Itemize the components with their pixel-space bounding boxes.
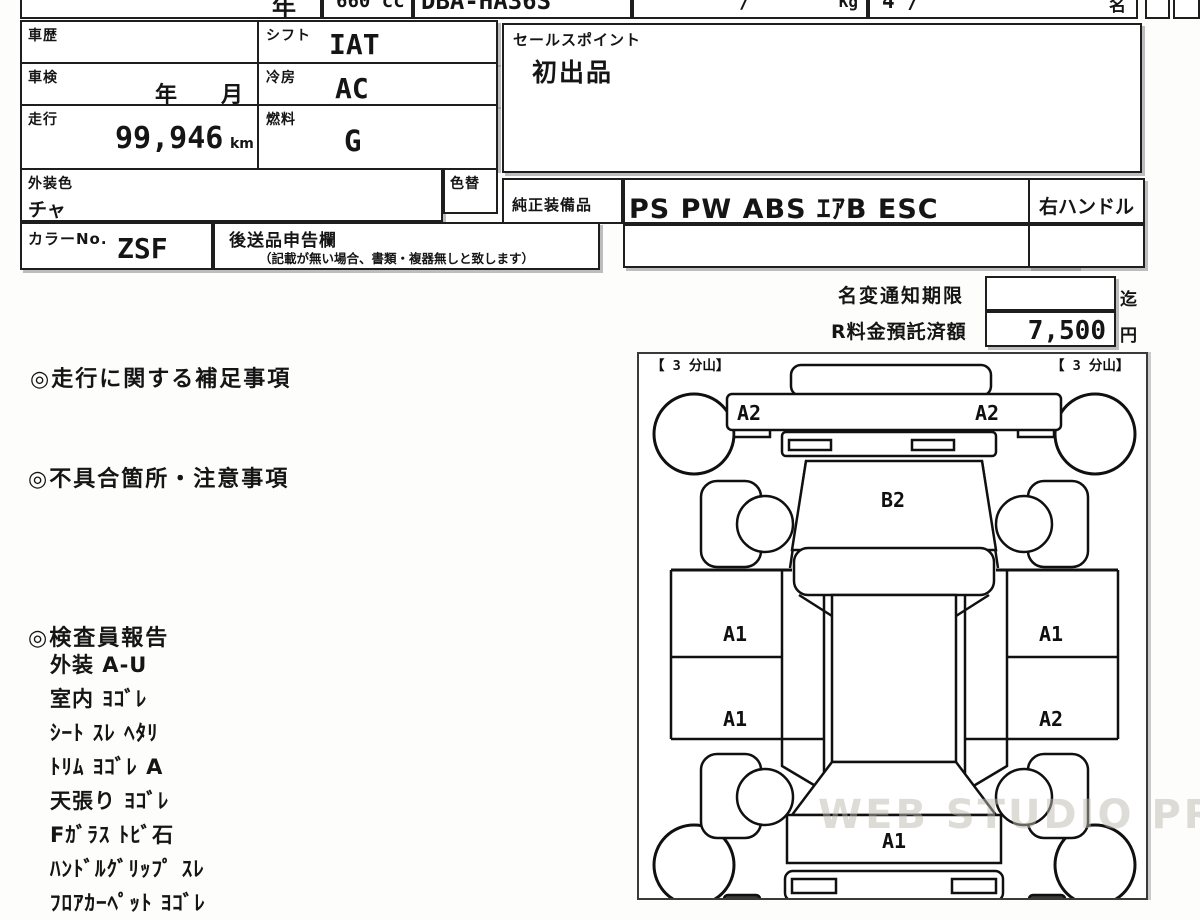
capacity-unit: 名 — [1109, 0, 1126, 16]
top-cell-capacity: 4 / 名 — [868, 0, 1138, 19]
shift-value: IAT — [329, 28, 380, 61]
report-item-exterior: 外装 A-U — [50, 648, 206, 682]
roof-panel — [794, 548, 994, 595]
mark-front-right: A2 — [975, 401, 999, 425]
report-item-glass: Fｶﾞﾗｽ ﾄﾋﾞ石 — [50, 818, 206, 852]
mark-door-front-left: A1 — [723, 622, 747, 646]
wheel-front-right-icon — [1055, 394, 1135, 474]
mileage-notes-heading: ◎走行に関する補足事項 — [30, 361, 291, 393]
aircon-label: 冷房 — [266, 67, 296, 87]
muffler-stub-right — [1029, 895, 1065, 900]
sales-point-value: 初出品 — [532, 53, 613, 89]
top-cell-name: 年 — [20, 0, 322, 19]
car-damage-diagram: 【 3 分山】 【 3 分山】 A2 A2 B2 A1 A1 A1 A2 A1 — [637, 352, 1148, 900]
hood-vent-left — [789, 440, 831, 450]
equipment-label-cell: 純正装備品 — [502, 178, 623, 224]
muffler-stub-left — [724, 895, 760, 900]
color-no-label: カラーNo. — [28, 228, 108, 249]
front-bumper — [791, 365, 991, 396]
auction-sheet: { "top_strip": { "year_fragment": "年", "… — [0, 0, 1200, 900]
rear-quarter-left-cutout — [737, 769, 793, 825]
report-item-carpet: ﾌﾛｱｶｰﾍﾟｯﾄ ﾖｺﾞﾚ — [50, 886, 206, 920]
sales-point-box: セールスポイント 初出品 — [502, 23, 1142, 173]
top-cell-displacement: 660 cc — [322, 0, 413, 19]
steering-cell-2 — [1028, 224, 1145, 268]
color-no-value: ZSF — [117, 232, 168, 265]
aircon-value: AC — [335, 72, 369, 105]
history-cell: 車歴 — [20, 20, 259, 64]
top-cell-weight: / Kg — [632, 0, 868, 19]
hood-vent-right — [912, 440, 954, 450]
mileage-unit: km — [230, 136, 254, 152]
capacity-value: 4 / — [882, 0, 920, 13]
later-items-cell: 後送品申告欄 （記載が無い場合、書類・複器無しと致します） — [213, 222, 600, 270]
rear-bumper-vent-left — [792, 879, 836, 893]
report-item-grip: ﾊﾝﾄﾞﾙｸﾞﾘｯﾌﾟ ｽﾚ — [50, 852, 206, 886]
tire-note-right: 【 3 分山】 — [1051, 358, 1129, 374]
cabin-panel — [832, 595, 956, 762]
tire-note-left: 【 3 分山】 — [651, 358, 729, 374]
mark-front-left: A2 — [737, 401, 761, 425]
steering-cell: 右ハンドル — [1028, 178, 1145, 224]
name-change-suffix: 迄 — [1120, 285, 1137, 310]
front-panel-strip — [727, 394, 1061, 430]
shift-cell: シフト IAT — [257, 20, 498, 64]
wheel-front-left-icon — [654, 394, 734, 474]
mirror-left-cutout — [737, 496, 793, 552]
rear-quarter-right-cutout — [996, 769, 1052, 825]
shift-label: シフト — [266, 25, 311, 45]
name-change-label: 名変通知期限 — [838, 281, 964, 308]
car-top-view: 【 3 分山】 【 3 分山】 A2 A2 B2 A1 A1 A1 A2 A1 — [639, 354, 1148, 900]
inspection-label: 車検 — [28, 67, 58, 87]
report-item-interior: 室内 ﾖｺﾞﾚ — [50, 682, 206, 716]
fuel-label: 燃料 — [266, 109, 296, 129]
steering-value: 右ハンドル — [1039, 192, 1134, 219]
mileage-value: 99,946 — [115, 121, 223, 156]
defects-heading: ◎不具合箇所・注意事項 — [28, 461, 289, 493]
history-label: 車歴 — [28, 25, 58, 45]
mark-windshield: B2 — [881, 488, 905, 512]
rear-bumper-vent-right — [952, 879, 996, 893]
top-cell-stub-1 — [1145, 0, 1170, 19]
aircon-cell: 冷房 AC — [257, 62, 498, 106]
mark-door-rear-right: A2 — [1039, 707, 1063, 731]
mileage-label: 走行 — [28, 109, 58, 129]
recycle-fee-box: 7,500 — [985, 311, 1116, 347]
color-no-cell: カラーNo. ZSF — [20, 222, 213, 270]
weight-unit: Kg — [839, 0, 858, 11]
exterior-color-cell: 外装色 チャ — [20, 168, 443, 222]
equipment-label: 純正装備品 — [512, 194, 592, 215]
mark-rear-panel: A1 — [882, 829, 906, 853]
mark-door-front-right: A1 — [1039, 622, 1063, 646]
top-cell-model-code: DBA-HA36S — [413, 0, 632, 19]
exterior-color-value: チャ — [28, 195, 66, 222]
model-code-value: DBA-HA36S — [421, 0, 551, 15]
color-change-label: 色替 — [450, 173, 480, 193]
later-items-note: （記載が無い場合、書類・複器無しと致します） — [259, 248, 534, 267]
displacement-value: 660 cc — [336, 0, 405, 12]
sales-point-label: セールスポイント — [513, 29, 641, 50]
weight-value: / — [739, 0, 751, 13]
name-change-box — [985, 276, 1116, 311]
equipment-value: PS PW ABS ｴｱB ESC — [629, 187, 939, 226]
top-cell-stub-2 — [1173, 0, 1200, 19]
fuel-value: G — [344, 124, 361, 158]
top-year-fragment: 年 — [272, 0, 296, 19]
exterior-color-label: 外装色 — [28, 173, 73, 193]
report-item-seat: ｼｰﾄ ｽﾚ ﾍﾀﾘ — [50, 716, 206, 750]
report-item-headliner: 天張り ﾖｺﾞﾚ — [50, 784, 206, 818]
recycle-fee-suffix: 円 — [1120, 321, 1137, 346]
mark-door-rear-left: A1 — [723, 707, 747, 731]
mirror-right-cutout — [996, 496, 1052, 552]
color-change-cell: 色替 — [443, 168, 498, 214]
report-item-trim: ﾄﾘﾑ ﾖｺﾞﾚ A — [50, 750, 206, 784]
inspection-cell: 車検 年 月 — [20, 62, 259, 106]
recycle-fee-label: R料金預託済額 — [831, 317, 967, 344]
mileage-cell: 走行 99,946 km — [20, 104, 259, 170]
inspector-report-list: 外装 A-U 室内 ﾖｺﾞﾚ ｼｰﾄ ｽﾚ ﾍﾀﾘ ﾄﾘﾑ ﾖｺﾞﾚ A 天張り… — [50, 648, 206, 920]
fuel-cell: 燃料 G — [257, 104, 498, 170]
equipment-value-cell: PS PW ABS ｴｱB ESC — [623, 178, 1078, 224]
equipment-value-cell-2 — [623, 224, 1078, 268]
recycle-fee-value: 7,500 — [1028, 316, 1106, 346]
